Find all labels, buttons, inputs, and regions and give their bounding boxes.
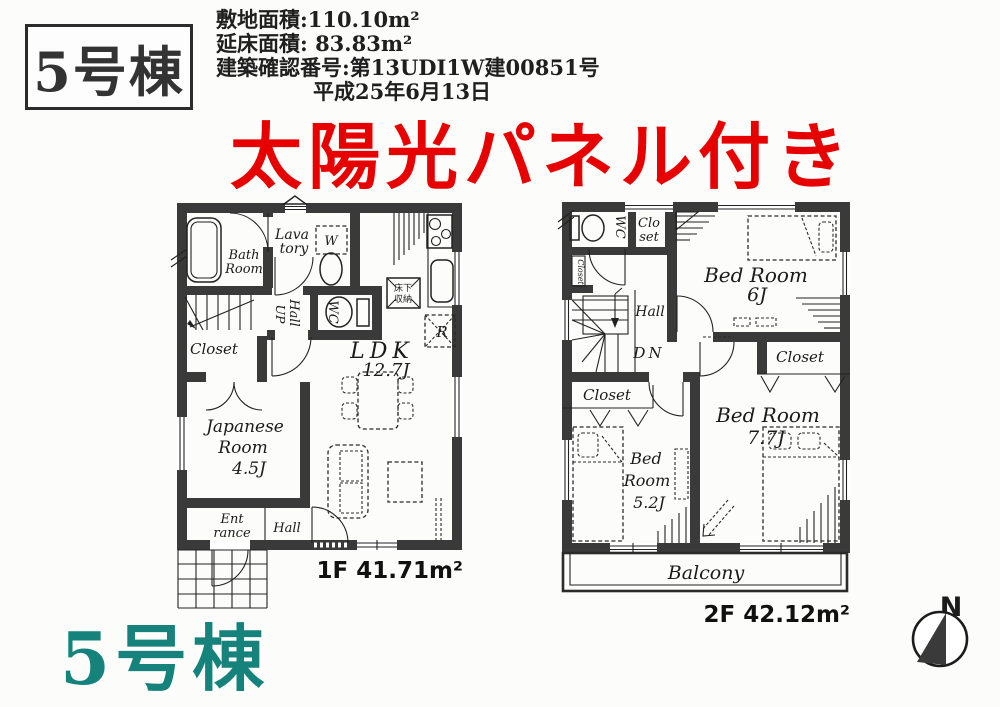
hall-mid-label: Hall <box>286 298 301 326</box>
wc-label-2f: WC <box>612 215 627 238</box>
washer-label: W <box>324 234 339 249</box>
toilet-icon-2f <box>570 215 604 241</box>
japanese-room-label: Japanese <box>203 417 284 437</box>
bed52-label2: Room <box>623 471 670 490</box>
closet-top-label2: set <box>639 230 659 245</box>
floor2-walls <box>562 202 850 553</box>
compass: N <box>898 578 998 693</box>
closet-right-label: Closet <box>776 348 825 366</box>
kitchen-hatch-lines <box>394 213 424 265</box>
ldk-size-label: 12.7J <box>362 360 411 381</box>
floor1-walls <box>177 203 462 550</box>
stairs-1f <box>185 295 254 330</box>
hall-label-2f: Hall <box>634 304 665 320</box>
closet-label-1f: Closet <box>190 340 239 358</box>
wc-label-1f: WC <box>325 300 340 323</box>
bed52-label: Bed <box>629 449 661 468</box>
floor2-plan: WC Clo set Closet Hall DN Bed Room 6J Cl… <box>558 196 858 641</box>
closet-top-label: Clo <box>638 216 660 231</box>
property-info: 敷地面積:110.10m² 延床面積: 83.83m² 建築確認番号:第13UD… <box>216 8 600 104</box>
underfloor-label: 床下 <box>394 282 412 294</box>
underfloor-label2: 収納 <box>394 293 412 305</box>
sofa <box>328 445 368 518</box>
bed77-size-label: 7.7J <box>747 427 786 449</box>
unit-footer-label: 5号棟 <box>60 600 269 705</box>
entrance-label2: rance <box>213 526 251 541</box>
floor-area-line: 延床面積: 83.83m² <box>216 32 600 56</box>
bathtub <box>187 218 221 282</box>
bath-label2: Room <box>224 262 263 277</box>
closet-side-label: Closet <box>576 259 585 285</box>
balcony-label: Balcony <box>667 562 745 584</box>
closet-left-label: Closet <box>583 386 632 404</box>
solar-panel-banner: 太陽光パネル付き <box>230 98 854 203</box>
bed77-label: Bed Room <box>715 403 820 427</box>
japanese-room-label3: 4.5J <box>231 459 267 479</box>
shutter-marks <box>436 498 441 540</box>
bed6-size-label: 6J <box>747 284 768 306</box>
stairs-2f <box>572 288 635 372</box>
unit-badge-text: 5号棟 <box>33 28 185 107</box>
down-label: DN <box>632 344 664 362</box>
entrance-label: Ent <box>219 512 244 527</box>
floor1-plan: Bath Room Lava tory W UP Hall WC 床下 収納 R… <box>170 196 470 641</box>
kitchen-counter <box>427 213 453 307</box>
lavatory-label2: tory <box>280 241 310 257</box>
japanese-room-label2: Room <box>217 438 267 458</box>
bed52-size-label: 5.2J <box>633 493 666 512</box>
coffee-table <box>388 462 422 502</box>
up-label: UP <box>273 305 288 325</box>
kitchen-sink <box>431 260 453 302</box>
unit-badge-box: 5号棟 <box>25 24 193 110</box>
fridge-label: R <box>435 323 447 341</box>
lavatory-sink <box>320 253 342 285</box>
floor1-area-label: 1F 41.71m² <box>316 558 463 584</box>
permit-number-line: 建築確認番号:第13UDI1W建00851号 <box>216 56 600 80</box>
hall-bottom-label: Hall <box>272 521 300 536</box>
floorplan-page: 5号棟 敷地面積:110.10m² 延床面積: 83.83m² 建築確認番号:第… <box>0 0 1000 707</box>
bath-label: Bath <box>228 248 260 263</box>
floor2-area-label: 2F 42.12m² <box>703 602 850 628</box>
gable-vent-icon <box>284 196 306 204</box>
site-area-line: 敷地面積:110.10m² <box>216 8 600 32</box>
